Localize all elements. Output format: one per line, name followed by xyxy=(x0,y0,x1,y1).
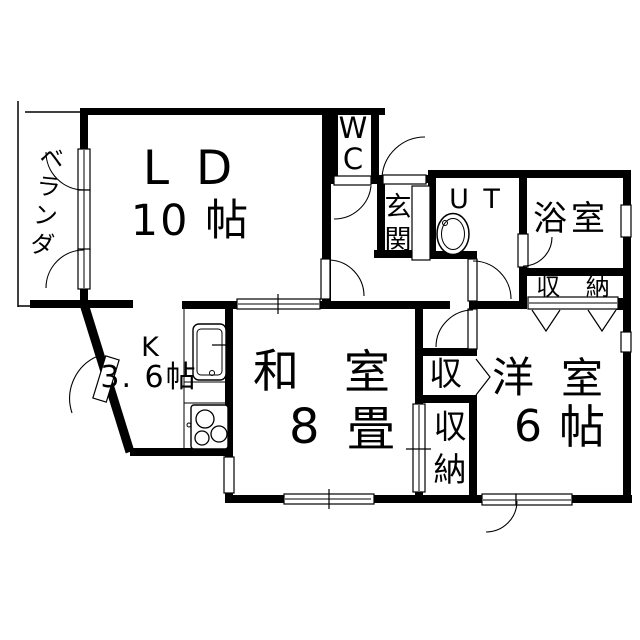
floor-plan: ベ ラ ン ダ L D 10 帖 WC 玄関 U T 浴室 収 納 K 3. 6… xyxy=(0,0,640,640)
ut-niche-door-arc xyxy=(473,261,511,299)
room-size-living-dining: 10 帖 xyxy=(128,199,253,244)
bath-door-panel xyxy=(518,234,528,267)
ld-hall-door-panel xyxy=(321,259,330,299)
room-label-storage-upper: 収 納 xyxy=(527,275,619,300)
upper-closet-bifold-right xyxy=(588,310,616,331)
room-size-japanese-room-unit: 畳 xyxy=(347,404,395,454)
room-size-kitchen: 3. 6帖 xyxy=(90,362,208,394)
upper-closet-bifold-left xyxy=(532,310,560,331)
room-label-bathroom: 浴室 xyxy=(529,202,613,238)
wc-door-panel xyxy=(334,176,371,185)
kitchen-stove xyxy=(187,405,228,449)
room-label-kitchen: K xyxy=(128,334,172,362)
room-size-japanese-room-num: 8 xyxy=(289,402,320,452)
storage-lower-char-2: 納 xyxy=(431,448,469,491)
room-label-japanese-room-kanji1: 和 xyxy=(253,347,299,395)
wc-char-1: W xyxy=(333,113,373,144)
room-label-entrance: 玄関 xyxy=(381,191,415,257)
room-label-japanese-room-kanji2: 室 xyxy=(344,348,390,396)
room-size-western-room-unit: 帖 xyxy=(559,403,605,451)
room-label-utility: U T xyxy=(440,186,512,214)
room-label-western-room-kanji2: 室 xyxy=(561,357,603,401)
room-label-living-dining: L D xyxy=(128,144,253,193)
wc-char-2: C xyxy=(333,144,373,175)
middle-closet-bifold xyxy=(476,359,490,395)
ld-hall-door-arc xyxy=(330,260,364,296)
bathroom-window xyxy=(621,205,631,237)
entrance-char-1: 玄 xyxy=(381,191,415,224)
room-size-western-room-num: 6 xyxy=(514,404,542,450)
room-label-wc: WC xyxy=(333,113,373,175)
room-label-storage-middle: 収 xyxy=(429,357,462,392)
floor-plan-drawing xyxy=(0,0,640,640)
room-label-western-room-kanji1: 洋 xyxy=(492,356,534,400)
utility-sink xyxy=(437,214,469,255)
wc-door-arc xyxy=(334,186,371,219)
room-label-storage-lower: 収納 xyxy=(431,405,469,491)
entrance-char-2: 関 xyxy=(381,224,415,257)
western-room-window xyxy=(621,332,631,352)
western-room-bottom-door-arc xyxy=(486,501,517,532)
front-door-panel xyxy=(383,175,426,184)
storage-lower-char-1: 収 xyxy=(431,405,469,448)
front-door-arc xyxy=(382,137,425,177)
western-room-door-panel xyxy=(468,309,477,349)
washitsu-side-window xyxy=(224,457,234,493)
ut-niche-door-panel xyxy=(468,259,477,301)
